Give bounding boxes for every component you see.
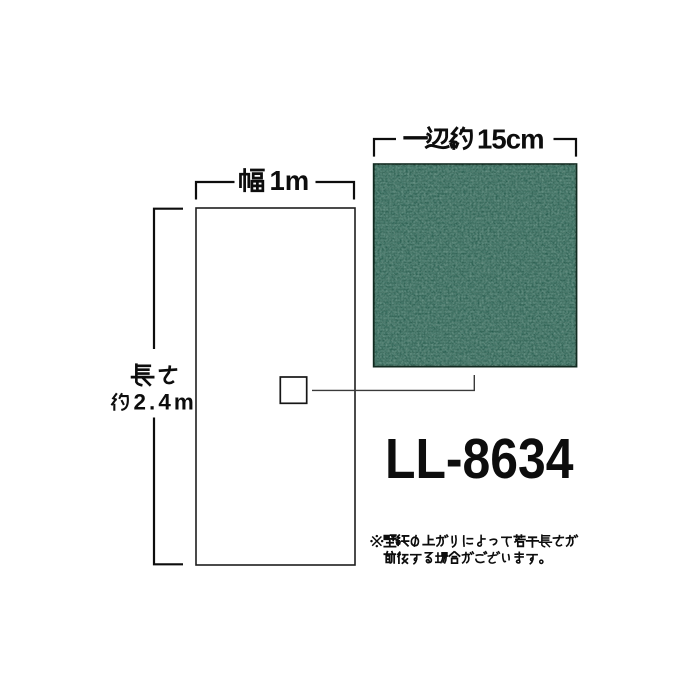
svg-text:1m: 1m (270, 165, 310, 196)
svg-text:2.4m: 2.4m (134, 389, 197, 414)
svg-text:LL-8634: LL-8634 (385, 428, 574, 491)
svg-text:15cm: 15cm (477, 123, 544, 154)
